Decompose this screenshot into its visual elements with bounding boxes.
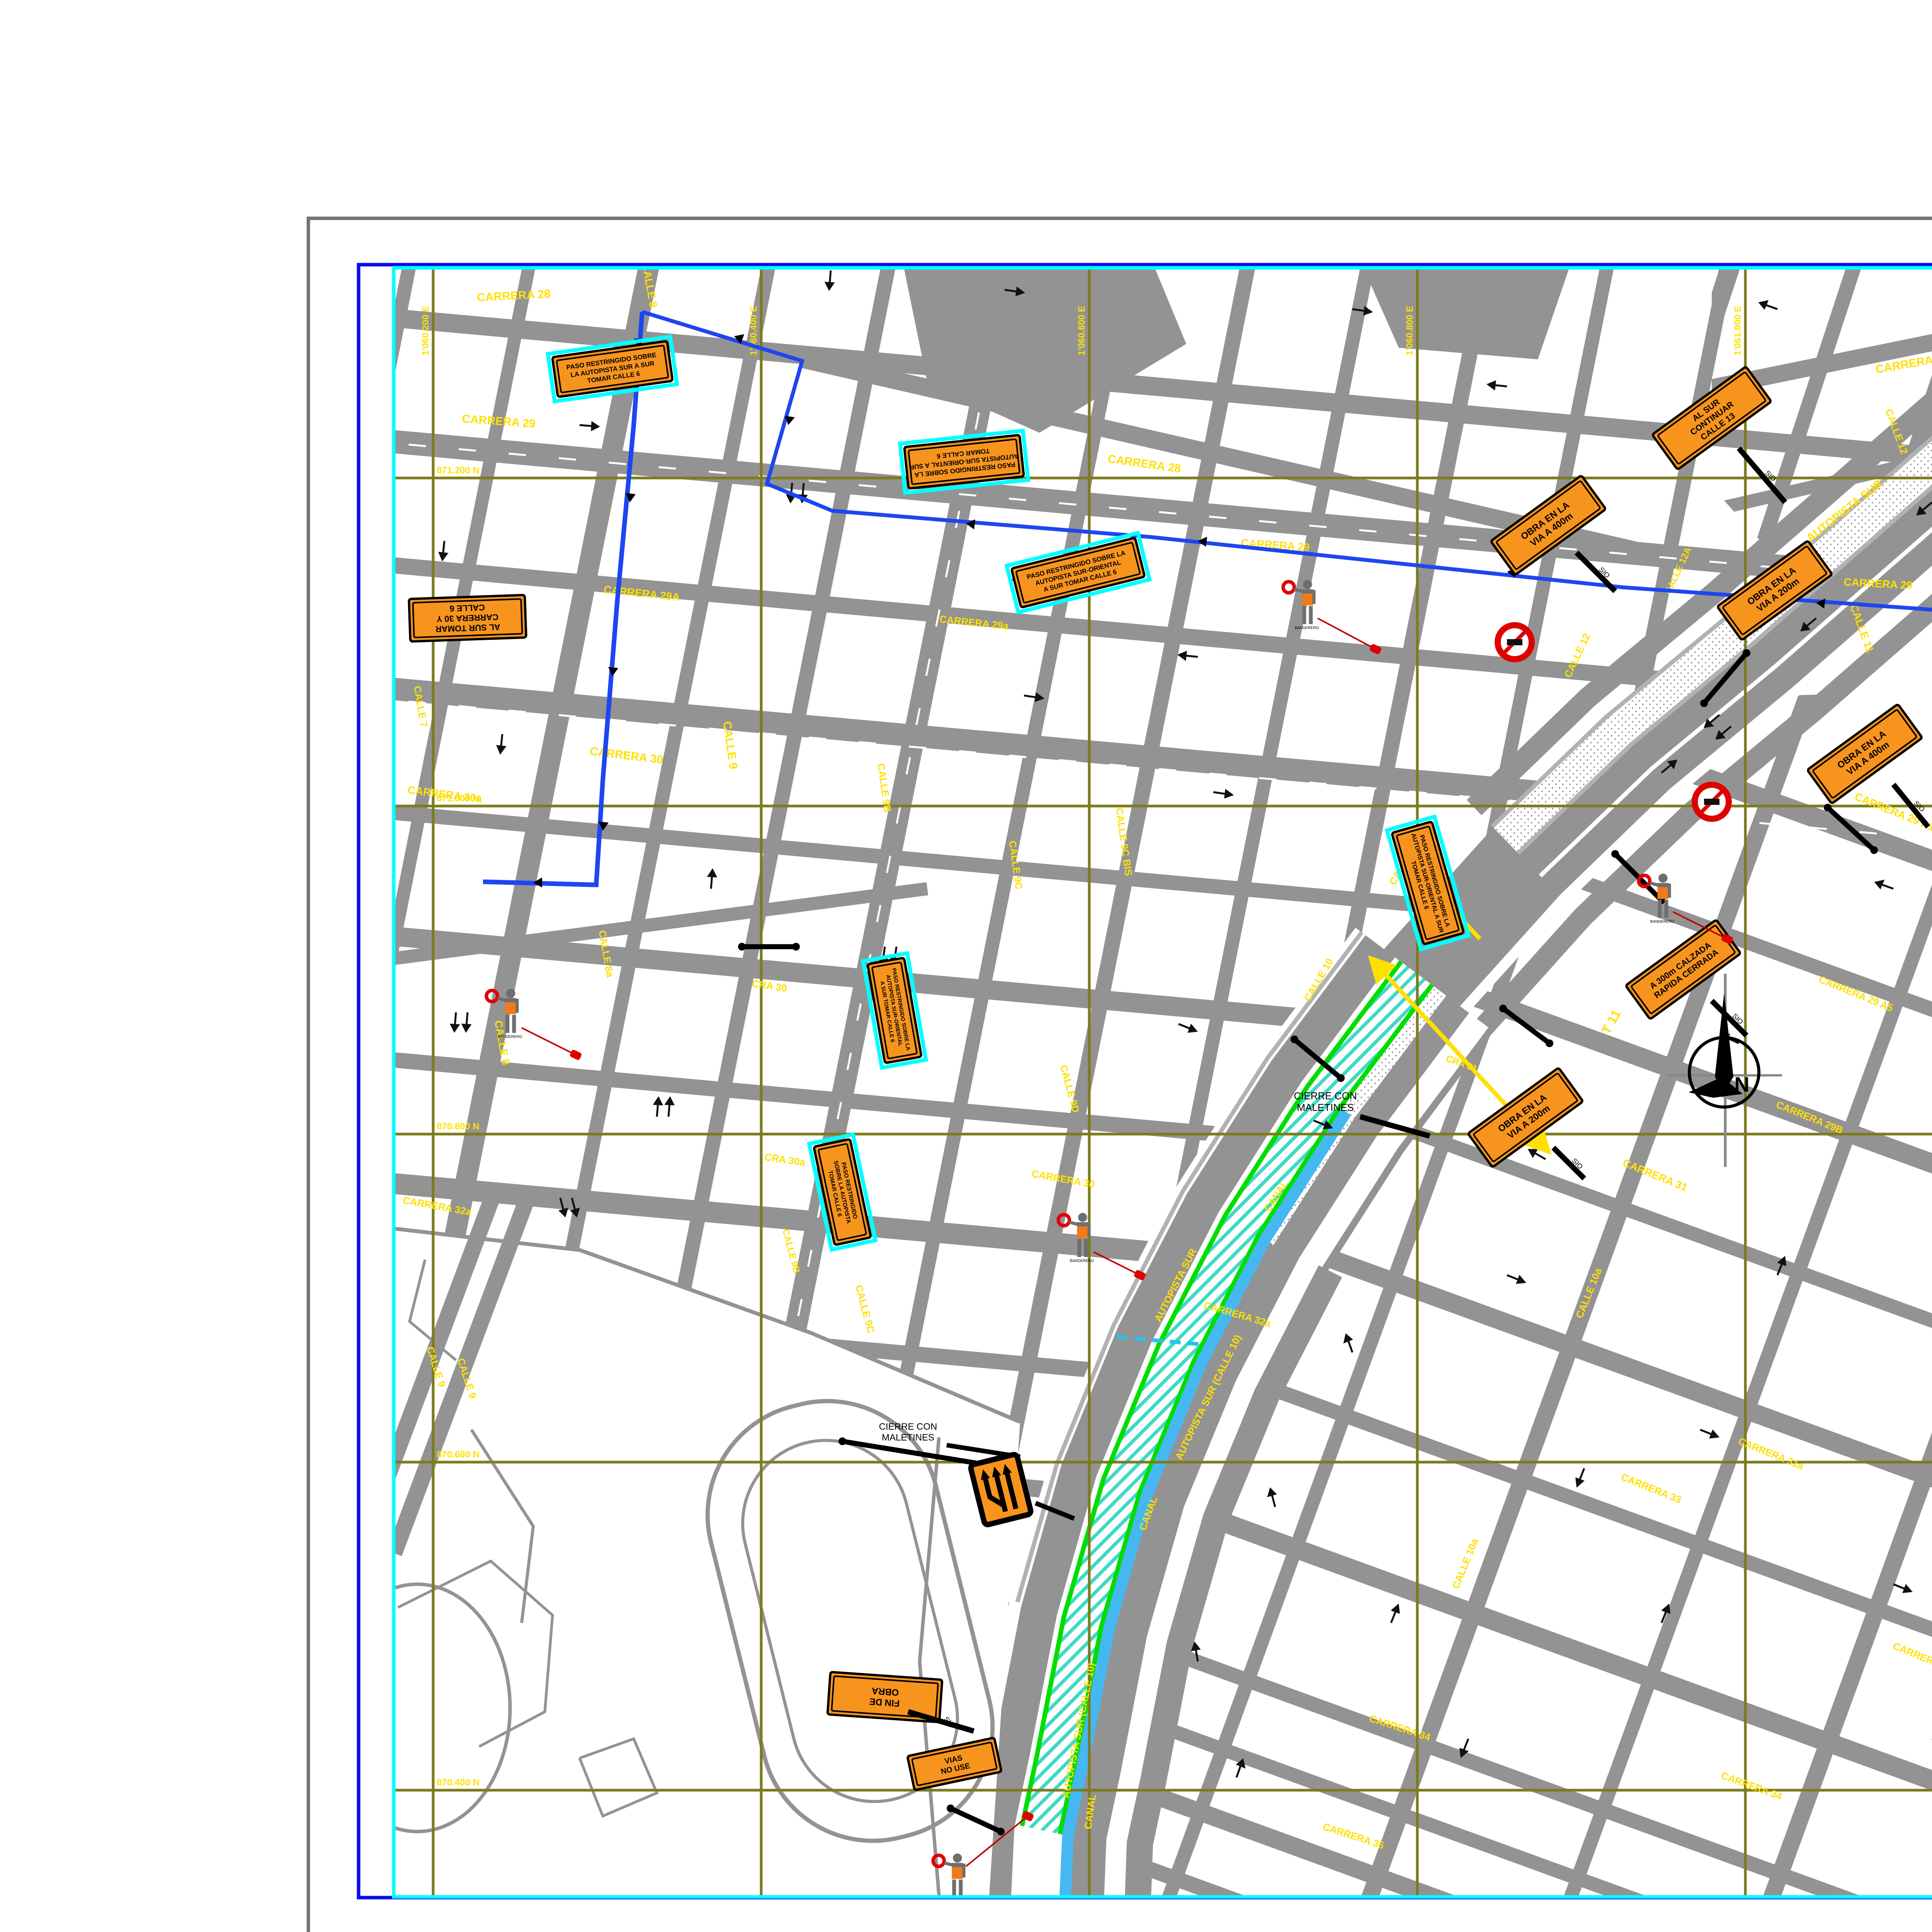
svg-text:1'061.000 E: 1'061.000 E — [1733, 306, 1743, 355]
svg-text:870.400 N: 870.400 N — [437, 1777, 480, 1788]
svg-text:871.200 N: 871.200 N — [437, 465, 480, 476]
svg-text:870.600 N: 870.600 N — [437, 1449, 480, 1460]
svg-text:1'060.200 E: 1'060.200 E — [420, 306, 431, 355]
svg-text:BANDERERO: BANDERERO — [1295, 626, 1319, 630]
svg-text:OBRA: OBRA — [871, 1685, 899, 1698]
svg-text:CIERRE CON: CIERRE CON — [879, 1422, 937, 1432]
svg-text:1'060.600 E: 1'060.600 E — [1077, 306, 1087, 355]
svg-text:FIN DE: FIN DE — [869, 1696, 900, 1708]
svg-text:BANDERERO: BANDERERO — [1650, 920, 1675, 924]
svg-text:MALETINES: MALETINES — [1297, 1102, 1354, 1113]
svg-text:MALETINES: MALETINES — [882, 1432, 934, 1443]
svg-text:BANDERERO: BANDERERO — [1070, 1259, 1094, 1263]
svg-text:BANDERERO: BANDERERO — [498, 1035, 522, 1039]
svg-text:CIERRE CON: CIERRE CON — [1294, 1090, 1357, 1102]
svg-text:870.800 N: 870.800 N — [437, 1121, 480, 1132]
svg-text:1'060.800 E: 1'060.800 E — [1405, 306, 1415, 355]
svg-text:N: N — [1735, 1073, 1750, 1096]
svg-text:CALLE 6: CALLE 6 — [449, 602, 485, 613]
